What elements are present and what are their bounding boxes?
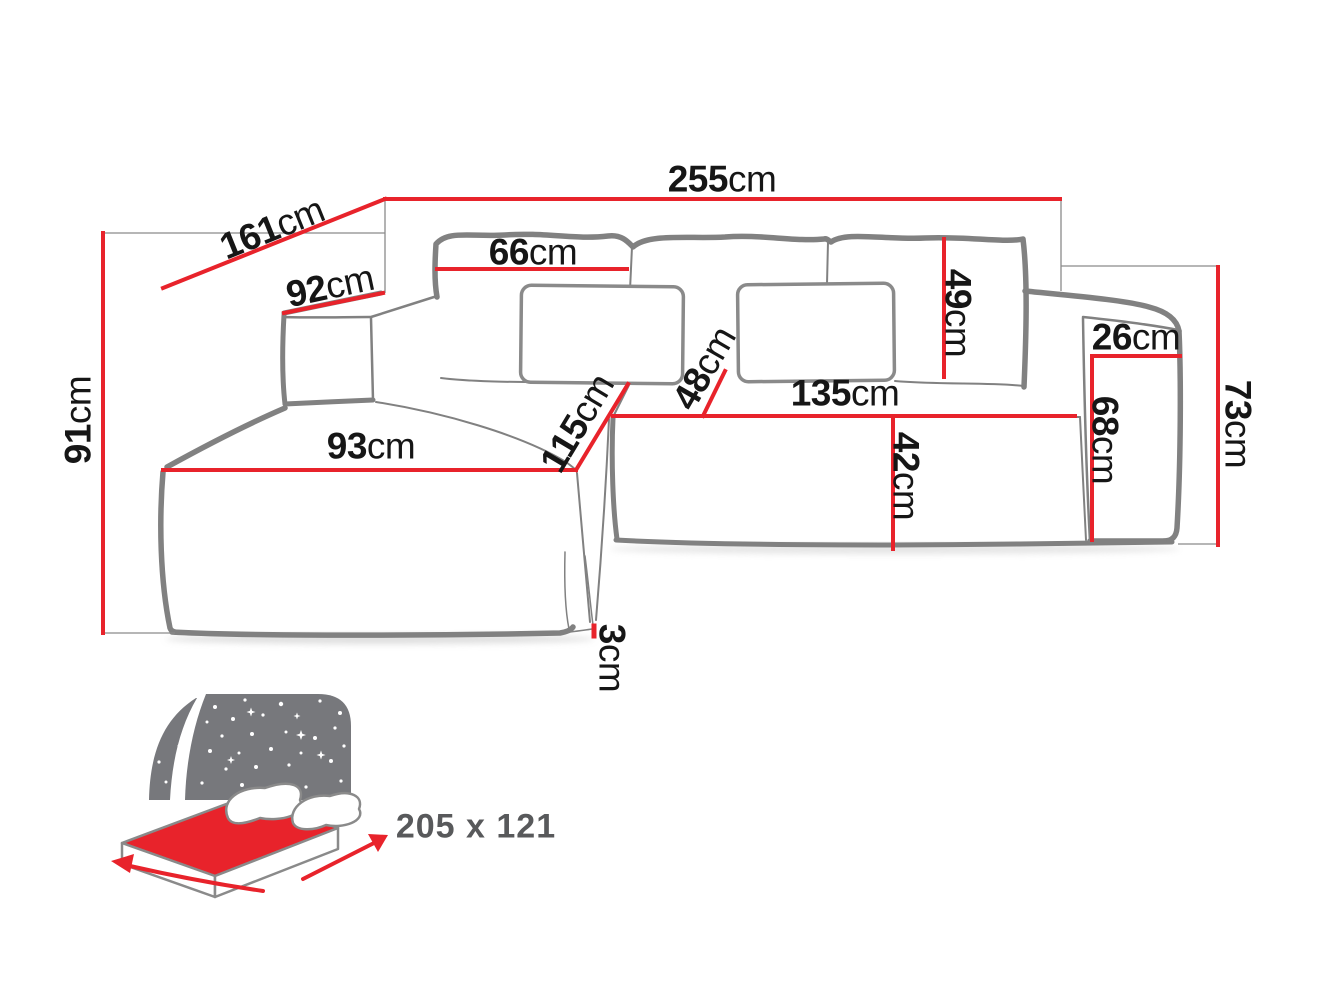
dim-label-42cm: 42cm (888, 432, 925, 520)
diagram-svg (0, 0, 1328, 996)
dim-label-3cm: 3cm (594, 624, 631, 692)
dim-label-49cm: 49cm (940, 269, 977, 357)
seat-pillow-left (520, 285, 683, 384)
dim-label-255cm: 255cm (668, 161, 777, 198)
dim-label-93cm: 93cm (327, 428, 415, 465)
dim-label-68cm: 68cm (1087, 396, 1124, 484)
seat-pillow-right (738, 283, 895, 382)
mattress-icon (122, 784, 360, 897)
dim-label-66cm: 66cm (489, 234, 577, 271)
chaise-left-slope (167, 408, 285, 467)
dim-label-26cm: 26cm (1092, 319, 1180, 356)
dim-label-135cm: 135cm (791, 375, 900, 412)
sleeping-area-label: 205 x 121 (396, 808, 556, 847)
dim-label-91cm: 91cm (60, 376, 97, 464)
sleeping-function-icon (111, 694, 388, 897)
sofa-dimension-diagram: 255cm 161cm 92cm 66cm 49cm 26cm 68cm 73c… (0, 0, 1328, 996)
dim-label-73cm: 73cm (1220, 380, 1257, 468)
